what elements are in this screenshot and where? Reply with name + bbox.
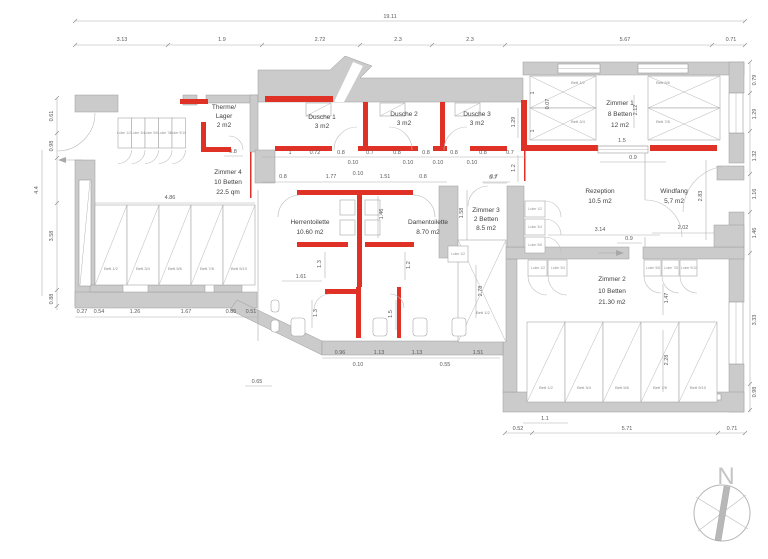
dim: 3.14 — [595, 227, 606, 233]
bed-label: Bett 5/6 — [168, 266, 183, 271]
dim: 0.7 — [489, 175, 497, 181]
room-zimmer1-line1: Zimmer 1 — [606, 100, 634, 107]
compass-needle-icon — [715, 486, 730, 541]
dim: 0.10 — [353, 362, 364, 368]
dim: 1.2 — [406, 261, 412, 269]
dim: 1.5 — [388, 310, 394, 318]
dim: 5.67 — [620, 37, 631, 43]
dim: 3.13 — [117, 37, 128, 43]
dim: 1.67 — [181, 309, 192, 315]
locker-label: Loker 7/8 — [664, 266, 678, 270]
dim: 1.58 — [459, 208, 465, 219]
compass: N — [694, 463, 750, 541]
dim: 5.71 — [622, 426, 633, 432]
dim: 1.29 — [511, 117, 517, 128]
beds-zimmer2 — [527, 322, 717, 402]
dim: 0.54 — [94, 309, 105, 315]
dim: 0.10 — [403, 160, 414, 166]
room-zimmer4-line1: Zimmer 4 — [214, 169, 242, 176]
locker-label: Loker 1/2 — [531, 266, 545, 270]
dim: 0.27 — [77, 309, 88, 315]
dim: 0.8 — [229, 149, 237, 155]
room-damen-line1: Damentoilette — [408, 219, 448, 226]
dim: 2.02 — [678, 225, 689, 231]
dim: 0.51 — [246, 309, 257, 315]
room-zimmer3-line1: Zimmer 3 — [472, 207, 500, 214]
lockers-zimmer4 — [118, 118, 186, 164]
dim-total: 19.11 — [383, 14, 396, 20]
locker-label: Loker 3/4 — [551, 266, 565, 270]
bed-label: Bett 1/2 — [476, 310, 491, 315]
room-zimmer2-line3: 21.30 m2 — [598, 299, 625, 306]
dim: 0.96 — [335, 350, 346, 356]
room-windfang-line2: 5,7 m2 — [664, 198, 684, 205]
beds-zimmer4 — [95, 205, 255, 285]
room-herren-line2: 10.60 m2 — [296, 229, 323, 236]
dim: 1.77 — [326, 174, 337, 180]
dim: 1.46 — [752, 228, 758, 239]
dim: 0.9 — [625, 236, 633, 242]
locker-label: Loker 5/6 — [646, 266, 660, 270]
room-dusche1-line1: Dusche 1 — [308, 114, 336, 121]
dim: 0.8 — [450, 150, 458, 156]
dim: 1.13 — [412, 350, 423, 356]
bed-label: Bett 1/2 — [539, 385, 554, 390]
dim: 0.79 — [752, 75, 758, 86]
bed-label: Bett 3/4 — [136, 266, 151, 271]
room-zimmer2-line2: 10 Betten — [598, 288, 626, 295]
locker-label: Loker 5/6 — [528, 243, 542, 247]
bed-label: Bett 3/4 — [577, 385, 592, 390]
bed-label: Bett 5/6 — [656, 80, 671, 85]
dim: 0.8 — [479, 150, 487, 156]
room-dusche2-line1: Dusche 2 — [390, 111, 418, 118]
dim: 1 — [530, 129, 536, 132]
dim: 4.4 — [34, 186, 40, 194]
arrow-left-icon — [58, 157, 66, 163]
dim: 1.47 — [664, 293, 670, 304]
dim: 0.98 — [752, 387, 758, 398]
bed-label: Bett 9/10 — [690, 385, 707, 390]
dim: 0.7 — [506, 150, 514, 156]
dim: 0.52 — [513, 426, 524, 432]
dim: 0.8 — [337, 150, 345, 156]
dim: 2.72 — [315, 37, 326, 43]
locker-label: Loker 1/2 — [528, 207, 542, 211]
dim: 0.55 — [440, 362, 451, 368]
locker-label: Loker 1/2 — [117, 131, 131, 135]
locker-label: Loker 9/10 — [681, 266, 697, 270]
dim: 0.85 — [226, 309, 237, 315]
room-rezeption-line2: 10.5 m2 — [588, 198, 612, 205]
dim: 1.32 — [752, 151, 758, 162]
dim: 0.10 — [348, 160, 359, 166]
bed-label: Bett 1/2 — [104, 266, 119, 271]
room-zimmer2-line1: Zimmer 2 — [598, 276, 626, 283]
bed-label: Bett 3/4 — [571, 119, 586, 124]
dim: 1.61 — [296, 274, 307, 280]
room-dusche1-line2: 3 m2 — [315, 123, 330, 130]
dim: 0.72 — [310, 150, 321, 156]
dim: 1.9 — [218, 37, 226, 43]
dim: 3.33 — [752, 315, 758, 326]
dim: 1 — [288, 150, 291, 156]
dim: 4.86 — [165, 195, 176, 201]
dim: 1.51 — [473, 350, 484, 356]
bed-label: Bett 7/8 — [653, 385, 668, 390]
room-windfang-line1: Windfang — [660, 188, 688, 195]
room-dusche3-line2: 3 m2 — [470, 120, 485, 127]
room-dusche2-line2: 3 m2 — [397, 120, 412, 127]
dim: 1.2 — [511, 164, 517, 172]
bed-label: Bett 1/2 — [571, 80, 586, 85]
dim: 1 — [530, 91, 536, 94]
dim: 0.98 — [49, 141, 55, 152]
dim: 2.3 — [466, 37, 474, 43]
bed-label: Bett 5/6 — [615, 385, 630, 390]
dim: 0.88 — [49, 294, 55, 305]
dim: 0.8 — [419, 174, 427, 180]
dim: 0.8 — [393, 150, 401, 156]
beds-zimmer1 — [530, 76, 720, 140]
bed-label: Bett 7/8 — [656, 119, 671, 124]
dim: 1.29 — [752, 109, 758, 120]
dim: 1.5 — [618, 138, 626, 144]
dim: 0.10 — [433, 160, 444, 166]
room-damen-line2: 8.70 m2 — [416, 229, 440, 236]
dim: 1.3 — [317, 260, 323, 268]
room-zimmer3-line3: 8.5 m2 — [476, 225, 496, 232]
locker-label: Loker 9/10 — [170, 131, 186, 135]
dim: 0.10 — [467, 160, 478, 166]
dim: 2.83 — [698, 191, 704, 202]
dim: 1.13 — [374, 350, 385, 356]
room-therme-line2: Lager — [216, 113, 233, 120]
dim: 0.65 — [252, 379, 263, 385]
dim: 0.8 — [279, 174, 287, 180]
dim: 3.58 — [49, 231, 55, 242]
dim: 0.61 — [49, 111, 55, 122]
locker-label: Loker 1/2 — [451, 252, 465, 256]
dim: 2.3 — [394, 37, 402, 43]
room-therme-line1: Therme/ — [212, 104, 236, 111]
locker-label: Loker 3/4 — [528, 225, 542, 229]
dim: 1.1 — [541, 416, 549, 422]
dim: 1.51 — [380, 174, 391, 180]
dim: 2.78 — [478, 286, 484, 297]
dim: 0.8 — [422, 150, 430, 156]
room-zimmer1-line3: 12 m2 — [611, 122, 629, 129]
dim: 0.71 — [726, 37, 737, 43]
dim: 1.26 — [130, 309, 141, 315]
dim: 2.12 — [633, 105, 639, 116]
room-therme-line3: 2 m2 — [217, 122, 232, 129]
dim: 0.10 — [353, 171, 364, 177]
room-dusche3-line1: Dusche 3 — [463, 111, 491, 118]
dim: 0.9 — [629, 155, 637, 161]
compass-north-label: N — [717, 463, 734, 490]
dim: 2.28 — [664, 355, 670, 366]
dim: 0.07 — [545, 99, 551, 110]
bed-label: Bett 7/8 — [200, 266, 215, 271]
dim: 0.71 — [727, 426, 738, 432]
dim: 0.7 — [366, 150, 374, 156]
room-herren-line1: Herrentoilette — [290, 219, 329, 226]
dim: 1.46 — [379, 209, 385, 220]
locker-label: Loker 5/6 — [144, 131, 158, 135]
room-rezeption-line1: Rezeption — [585, 188, 615, 195]
room-zimmer1-line2: 8 Betten — [608, 111, 633, 118]
bed-label: Bett 9/10 — [231, 266, 248, 271]
room-zimmer3-line2: 2 Betten — [474, 216, 499, 223]
room-zimmer4-line2: 10 Betten — [214, 179, 242, 186]
room-zimmer4-line3: 22.5 qm — [216, 189, 240, 196]
floor-plan: 19.11 3.13 1.9 2.72 2.3 2.3 5.67 0.71 0.… — [0, 0, 768, 559]
floor-plan-canvas: 19.11 3.13 1.9 2.72 2.3 2.3 5.67 0.71 0.… — [0, 0, 768, 559]
dim: 1.3 — [313, 309, 319, 317]
dim: 1.16 — [752, 189, 758, 200]
